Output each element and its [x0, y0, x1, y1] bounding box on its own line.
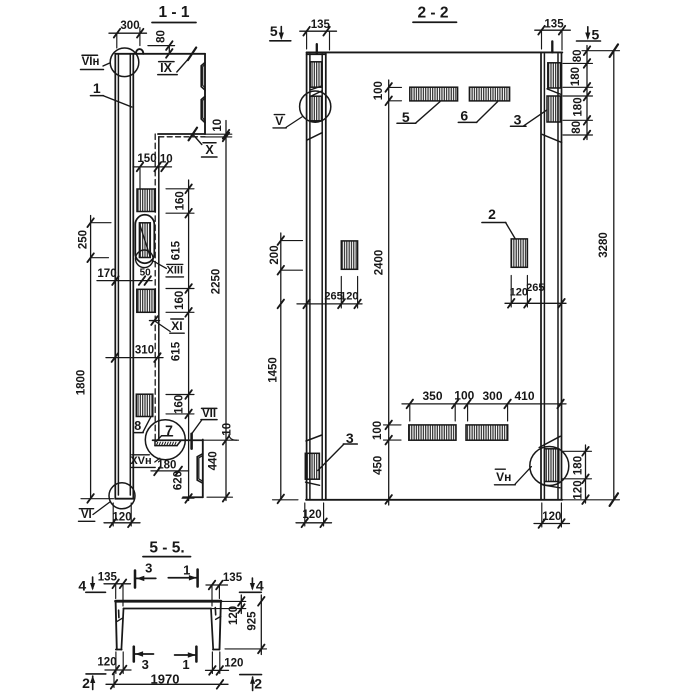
svg-text:250: 250	[78, 230, 90, 249]
svg-text:80: 80	[156, 30, 168, 43]
svg-text:VI: VI	[81, 509, 92, 521]
svg-text:VII: VII	[202, 408, 216, 420]
svg-text:150: 150	[137, 153, 156, 165]
svg-text:120: 120	[97, 656, 116, 668]
svg-text:3280: 3280	[598, 232, 610, 258]
svg-text:IX: IX	[160, 61, 172, 75]
svg-text:615: 615	[171, 341, 183, 361]
svg-text:5 - 5.: 5 - 5.	[149, 539, 184, 556]
svg-text:440: 440	[207, 451, 219, 470]
svg-text:1: 1	[183, 562, 190, 577]
svg-text:1800: 1800	[75, 370, 87, 396]
svg-text:3: 3	[142, 657, 149, 672]
svg-text:X: X	[205, 143, 214, 157]
svg-text:V: V	[275, 114, 283, 128]
svg-text:7: 7	[165, 422, 173, 438]
svg-text:1 - 1: 1 - 1	[158, 4, 189, 21]
svg-text:350: 350	[422, 389, 442, 403]
svg-text:2400: 2400	[373, 250, 385, 276]
svg-text:XIII: XIII	[167, 265, 184, 277]
svg-text:6: 6	[460, 107, 468, 123]
svg-text:120: 120	[572, 480, 584, 499]
svg-text:8: 8	[134, 419, 141, 433]
svg-text:410: 410	[514, 389, 534, 403]
svg-text:4: 4	[256, 577, 264, 593]
svg-text:5: 5	[270, 23, 278, 39]
svg-text:180: 180	[570, 67, 582, 86]
svg-text:2: 2	[488, 206, 496, 222]
svg-text:160: 160	[174, 291, 186, 310]
svg-text:450: 450	[373, 456, 385, 475]
svg-text:5: 5	[402, 109, 410, 125]
svg-text:1450: 1450	[267, 357, 279, 383]
svg-text:80: 80	[572, 50, 584, 63]
svg-text:100: 100	[372, 421, 384, 440]
svg-text:200: 200	[269, 245, 281, 264]
svg-text:Vн: Vн	[496, 470, 511, 484]
svg-text:10: 10	[221, 423, 233, 436]
svg-text:2250: 2250	[210, 269, 222, 295]
svg-text:2: 2	[82, 675, 90, 691]
svg-text:XI: XI	[171, 319, 182, 333]
svg-text:120: 120	[112, 511, 131, 523]
svg-text:180: 180	[572, 97, 584, 116]
svg-text:620: 620	[172, 471, 184, 490]
svg-text:3: 3	[514, 111, 522, 127]
svg-text:135: 135	[98, 571, 118, 583]
svg-text:VIн: VIн	[82, 56, 100, 68]
svg-text:615: 615	[170, 240, 182, 260]
svg-text:160: 160	[174, 191, 186, 210]
svg-text:1: 1	[182, 657, 189, 672]
svg-text:160: 160	[174, 395, 186, 414]
svg-text:120: 120	[340, 291, 358, 303]
svg-text:1: 1	[93, 80, 101, 96]
svg-text:180: 180	[573, 456, 585, 475]
svg-text:180: 180	[157, 459, 176, 471]
svg-text:120: 120	[224, 657, 243, 669]
svg-text:80: 80	[571, 121, 583, 134]
svg-text:50: 50	[140, 268, 152, 279]
svg-text:300: 300	[482, 389, 502, 403]
svg-text:3: 3	[145, 561, 152, 576]
svg-text:135: 135	[223, 572, 243, 584]
svg-text:135: 135	[544, 18, 564, 30]
svg-text:10: 10	[212, 119, 224, 132]
svg-text:2 - 2: 2 - 2	[417, 5, 448, 22]
svg-text:170: 170	[97, 268, 116, 280]
svg-text:XVн: XVн	[130, 455, 151, 467]
svg-text:120: 120	[542, 511, 561, 523]
svg-text:300: 300	[120, 20, 139, 32]
svg-text:2: 2	[254, 675, 262, 691]
svg-text:4: 4	[78, 577, 86, 593]
svg-text:265: 265	[526, 282, 544, 294]
svg-text:100: 100	[373, 81, 385, 100]
svg-text:925: 925	[247, 611, 259, 631]
svg-text:310: 310	[135, 345, 154, 357]
